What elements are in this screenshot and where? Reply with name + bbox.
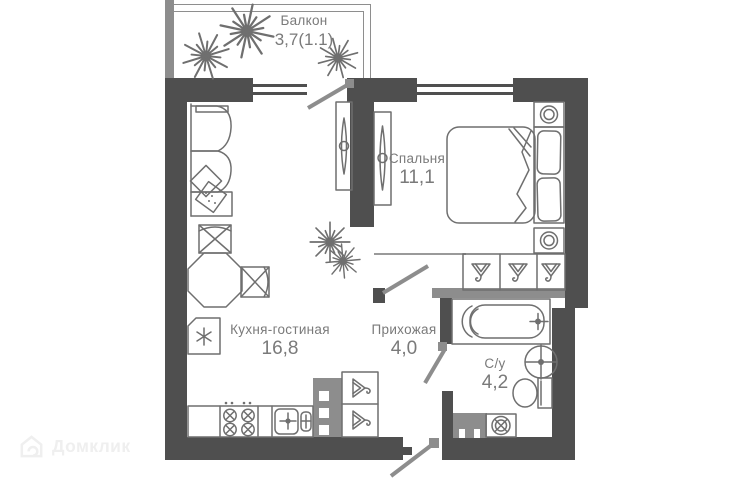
fixtures-layer (0, 0, 752, 480)
room-name: С/у (482, 356, 508, 371)
hanger-icon (509, 264, 527, 281)
label-bathroom: С/у 4,2 (482, 356, 508, 393)
room-area: 3,7(1.1) (275, 29, 334, 50)
pillow (537, 131, 561, 174)
nightstand-lamp (534, 102, 564, 127)
kitchen-sink (275, 409, 311, 434)
entrance-door (391, 444, 433, 476)
fridge (188, 318, 220, 354)
chair (199, 225, 231, 253)
bedroom-door (383, 266, 428, 293)
label-kitchen-living: Кухня-гостиная 16,8 (230, 322, 330, 359)
room-name: Прихожая (372, 322, 437, 337)
sofa-pillows (190, 165, 226, 212)
room-name: Кухня-гостиная (230, 322, 330, 337)
washbasin (525, 345, 557, 379)
stove (224, 402, 254, 436)
room-area: 11,1 (389, 167, 445, 188)
sofa (191, 104, 232, 216)
chair (241, 267, 269, 297)
domclick-logo-icon (18, 433, 45, 460)
double-bed (447, 127, 564, 223)
tv-stand (336, 102, 352, 190)
plant-icon (174, 0, 363, 88)
wardrobe-bedroom (463, 254, 565, 290)
room-name: Балкон (275, 13, 334, 28)
label-hallway: Прихожая 4,0 (372, 322, 437, 359)
balcony-door (308, 84, 349, 108)
label-bedroom: Спальня 11,1 (389, 151, 445, 188)
plant-icon (310, 222, 367, 285)
floor-plan: Балкон 3,7(1.1) Спальня 11,1 Кухня-гости… (0, 0, 752, 480)
room-area: 4,2 (482, 372, 508, 393)
nightstand-lamp (534, 228, 564, 253)
watermark: Домклик (18, 433, 131, 460)
bathtub (452, 299, 550, 344)
dining-table (188, 253, 242, 307)
watermark-brand: Домклик (52, 436, 131, 457)
hanger-icon (472, 264, 490, 281)
room-area: 16,8 (230, 338, 330, 359)
washing-machine (486, 414, 516, 437)
snowflake-icon (197, 328, 211, 345)
room-area: 4,0 (372, 338, 437, 359)
hanger-icon (353, 411, 370, 429)
hanger-icon (542, 264, 560, 281)
pillow (537, 178, 561, 222)
toilet (513, 378, 552, 408)
label-balcony: Балкон 3,7(1.1) (275, 13, 334, 50)
hanger-icon (353, 379, 370, 397)
hall-wardrobe (342, 372, 378, 437)
room-name: Спальня (389, 151, 445, 166)
